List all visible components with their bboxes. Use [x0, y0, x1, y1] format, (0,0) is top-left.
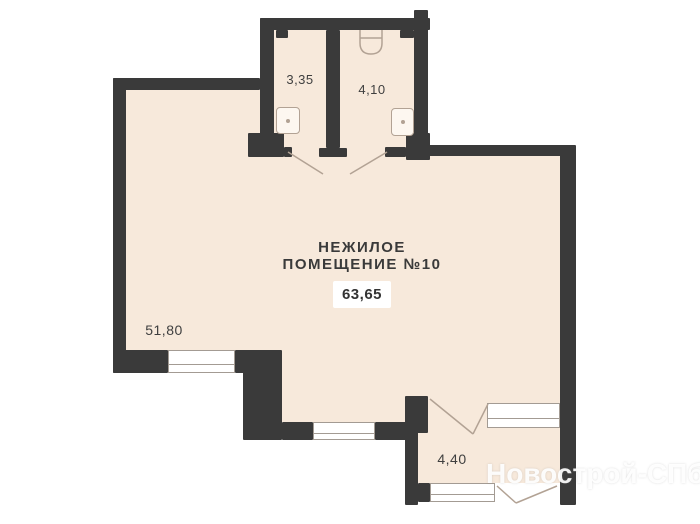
premises-title-line2: ПОМЕЩЕНИЕ №10 [283, 256, 442, 273]
watermark: Новострой-СПб [486, 458, 700, 490]
wall [400, 30, 414, 38]
wall [276, 30, 288, 38]
floor-main-hall [282, 403, 405, 422]
floor-main-hall [245, 350, 560, 403]
wall [406, 133, 430, 160]
total-area-badge: 63,65 [333, 281, 391, 308]
wall [385, 147, 406, 157]
room-area-label: 4,10 [358, 82, 385, 97]
wall [113, 78, 126, 373]
wall [113, 350, 168, 373]
room-area-label: 51,80 [145, 322, 183, 338]
wall [284, 147, 292, 157]
floor-main-hall [126, 90, 260, 352]
floor-main-hall [260, 156, 560, 352]
wall [560, 145, 576, 505]
wall [375, 422, 406, 440]
floor-plan: 3,35 4,10 51,80 4,40 НЕЖИЛОЕ ПОМЕЩЕНИЕ №… [0, 0, 700, 524]
wall [282, 422, 313, 440]
window [487, 403, 560, 428]
wall [326, 30, 340, 148]
sink-icon [391, 108, 414, 136]
window [168, 350, 235, 373]
wall [405, 427, 418, 505]
wall [113, 78, 260, 90]
room-area-label: 4,40 [437, 451, 466, 467]
wall [319, 148, 347, 157]
wall [248, 133, 284, 157]
premises-title-line1: НЕЖИЛОЕ [318, 239, 406, 256]
wall [243, 350, 282, 440]
window [313, 422, 375, 440]
sink-icon [276, 107, 300, 134]
room-area-label: 3,35 [286, 72, 313, 87]
wall [260, 18, 430, 30]
wall [418, 483, 430, 502]
total-area-value: 63,65 [342, 286, 382, 303]
wall [428, 145, 568, 156]
